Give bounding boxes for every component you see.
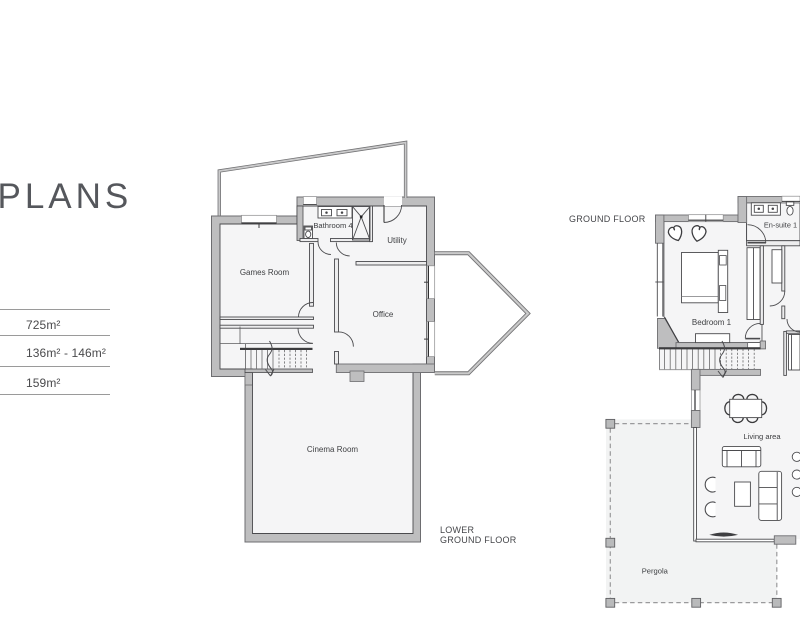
svg-text:Pergola: Pergola: [642, 567, 669, 576]
svg-text:Living area: Living area: [743, 432, 781, 441]
svg-text:Cinema Room: Cinema Room: [307, 445, 358, 454]
svg-text:Office: Office: [373, 310, 394, 319]
svg-text:En-suite 1: En-suite 1: [764, 221, 797, 230]
svg-text:Utility: Utility: [387, 236, 407, 245]
svg-text:Bathroom 4: Bathroom 4: [313, 221, 352, 230]
svg-text:Games Room: Games Room: [240, 268, 290, 277]
svg-text:Bedroom 1: Bedroom 1: [692, 318, 732, 327]
